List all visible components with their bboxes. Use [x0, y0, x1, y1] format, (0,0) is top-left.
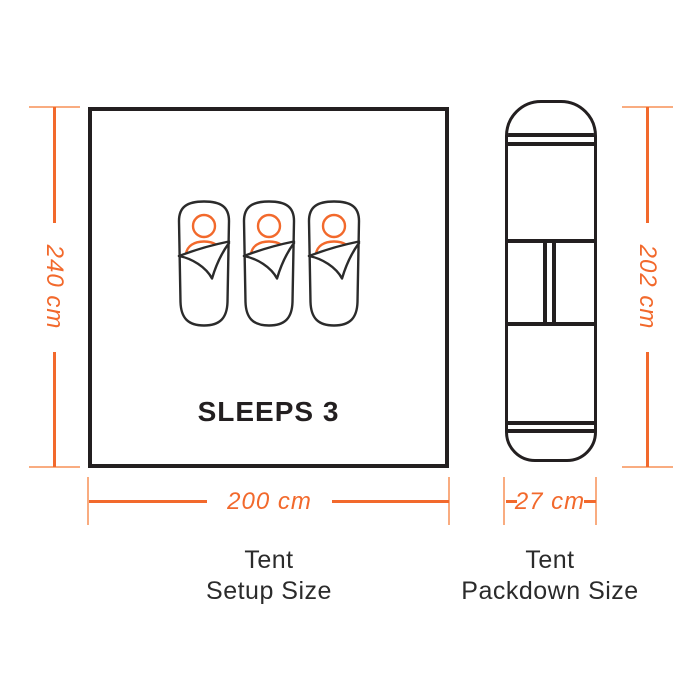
packdown-caption-line2: Packdown Size — [440, 576, 660, 607]
sleeping-bag-icon — [240, 199, 298, 328]
setup-width-line-left — [89, 500, 207, 503]
tent-packdown-outline — [505, 100, 597, 462]
setup-width-label: 200 cm — [207, 488, 332, 516]
packdown-handle-line-left — [543, 240, 547, 325]
packdown-height-line-upper — [646, 107, 649, 223]
setup-caption-line2: Setup Size — [159, 576, 379, 607]
setup-caption-line1: Tent — [159, 545, 379, 576]
sleeping-bag-icon — [305, 199, 363, 328]
packdown-panel-line-upper — [508, 239, 594, 243]
setup-width-line-right — [332, 500, 449, 503]
setup-caption: Tent Setup Size — [159, 545, 379, 607]
setup-height-line-lower — [53, 352, 56, 467]
packdown-caption: Tent Packdown Size — [440, 545, 660, 607]
packdown-panel-line-lower — [508, 322, 594, 326]
packdown-strap-line-bottom-1 — [508, 421, 594, 425]
packdown-strap-line-top-2 — [508, 142, 594, 146]
tent-size-diagram: SLEEPS 3 240 cm 200 cm Tent Setup Size 2… — [0, 0, 700, 700]
packdown-strap-line-bottom-2 — [508, 429, 594, 433]
sleeps-label: SLEEPS 3 — [98, 396, 439, 428]
setup-height-label: 240 cm — [40, 222, 68, 352]
setup-height-line-upper — [53, 107, 56, 223]
packdown-handle-line-right — [552, 240, 556, 325]
packdown-height-line-lower — [646, 352, 649, 467]
sleeping-bags-row — [175, 199, 363, 328]
packdown-caption-line1: Tent — [440, 545, 660, 576]
packdown-height-label: 202 cm — [633, 222, 661, 352]
packdown-width-tick-left — [503, 477, 505, 525]
packdown-width-label: 27 cm — [510, 488, 590, 516]
sleeping-bag-icon — [175, 199, 233, 328]
packdown-strap-line-top-1 — [508, 133, 594, 137]
